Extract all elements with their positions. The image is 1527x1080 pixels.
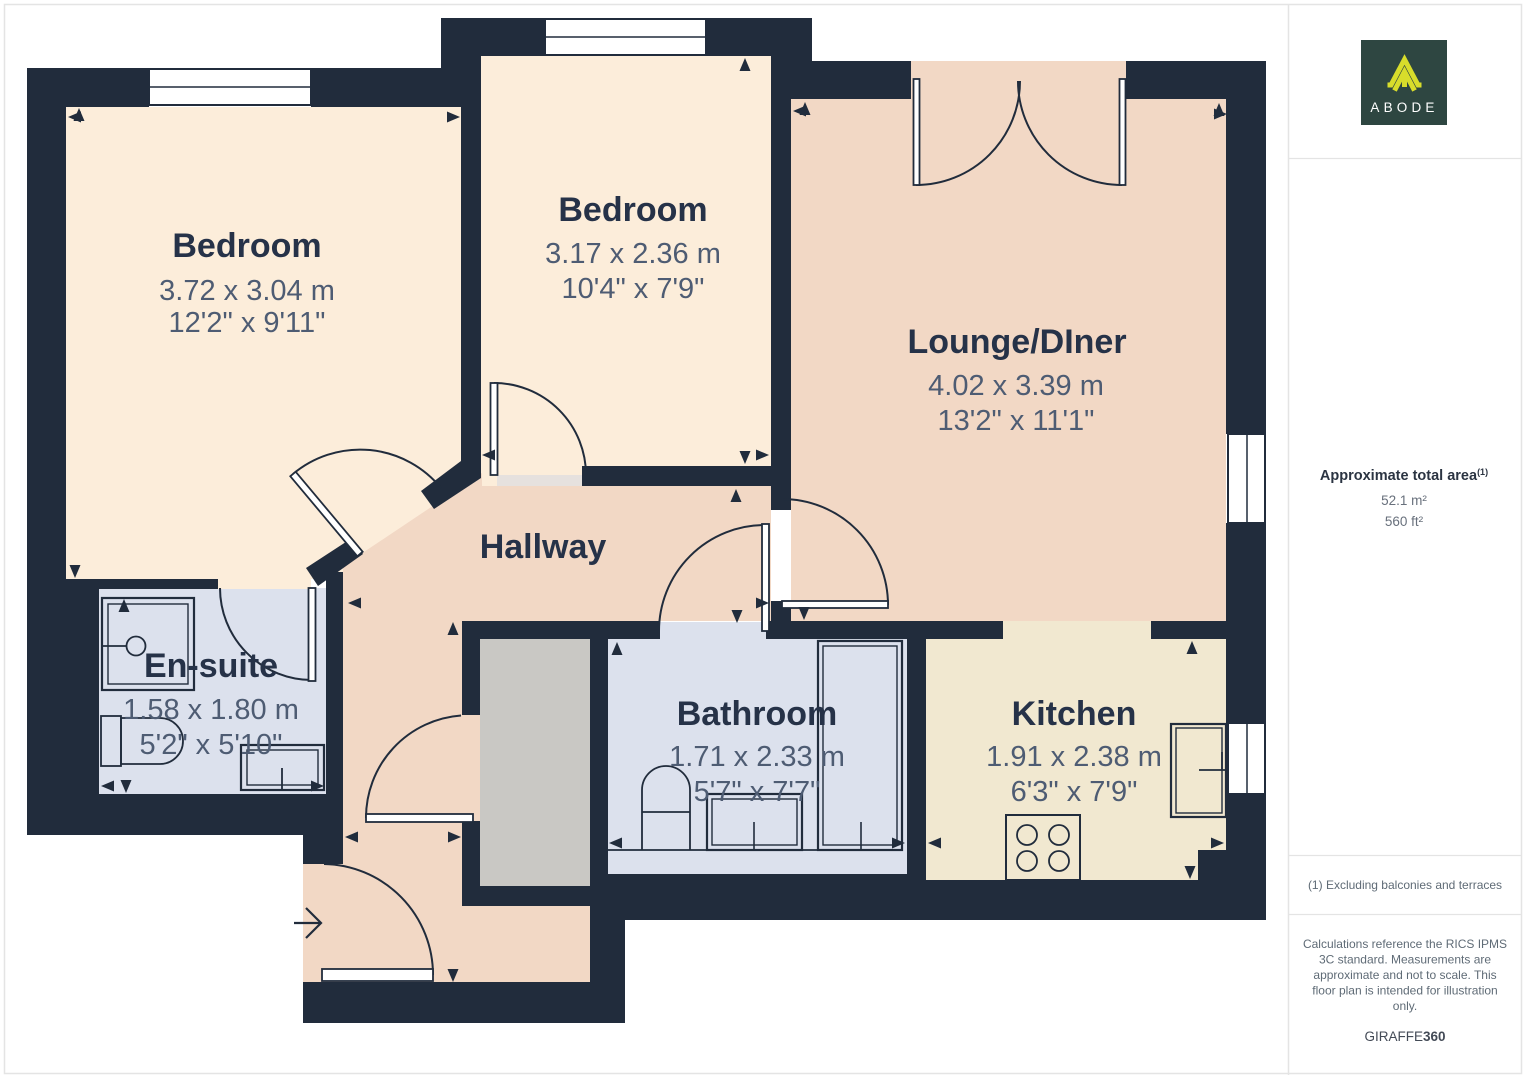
svg-text:1.58 x 1.80 m: 1.58 x 1.80 m (123, 694, 299, 726)
svg-text:3C standard. Measurements are: 3C standard. Measurements are (1319, 953, 1491, 967)
svg-text:6'3" x 7'9": 6'3" x 7'9" (1011, 776, 1138, 808)
svg-text:approximate and not to scale.: approximate and not to scale. This (1313, 968, 1496, 982)
svg-text:GIRAFFE360: GIRAFFE360 (1364, 1029, 1445, 1044)
svg-text:Bedroom: Bedroom (558, 191, 707, 229)
svg-text:5'2" x 5'10": 5'2" x 5'10" (140, 729, 283, 761)
svg-text:12'2" x 9'11": 12'2" x 9'11" (169, 307, 326, 339)
svg-text:1.71 x 2.33 m: 1.71 x 2.33 m (669, 741, 845, 773)
svg-text:1.91 x 2.38 m: 1.91 x 2.38 m (986, 741, 1162, 773)
svg-text:3.72 x 3.04 m: 3.72 x 3.04 m (159, 275, 335, 307)
svg-text:5'7" x 7'7": 5'7" x 7'7" (694, 776, 821, 808)
svg-text:4.02 x 3.39 m: 4.02 x 3.39 m (928, 370, 1104, 402)
svg-text:Bathroom: Bathroom (677, 695, 838, 733)
svg-text:Bedroom: Bedroom (172, 227, 321, 265)
svg-text:3.17 x 2.36 m: 3.17 x 2.36 m (545, 238, 721, 270)
svg-text:10'4" x 7'9": 10'4" x 7'9" (562, 273, 705, 305)
svg-text:Kitchen: Kitchen (1012, 695, 1137, 733)
svg-text:only.: only. (1393, 999, 1417, 1013)
svg-text:560 ft²: 560 ft² (1385, 514, 1424, 529)
svg-text:Approximate total area(1): Approximate total area(1) (1320, 467, 1488, 484)
svg-text:Hallway: Hallway (480, 528, 607, 566)
svg-text:(1) Excluding balconies and te: (1) Excluding balconies and terraces (1308, 878, 1502, 892)
svg-text:52.1 m²: 52.1 m² (1381, 493, 1427, 508)
svg-text:13'2" x 11'1": 13'2" x 11'1" (938, 405, 1095, 437)
svg-text:Calculations reference the RIC: Calculations reference the RICS IPMS (1303, 937, 1507, 951)
svg-text:floor plan is intended for ill: floor plan is intended for illustration (1312, 984, 1497, 998)
svg-text:En-suite: En-suite (144, 647, 278, 685)
svg-text:Lounge/DIner: Lounge/DIner (907, 323, 1126, 361)
svg-text:ABODE: ABODE (1370, 100, 1438, 115)
